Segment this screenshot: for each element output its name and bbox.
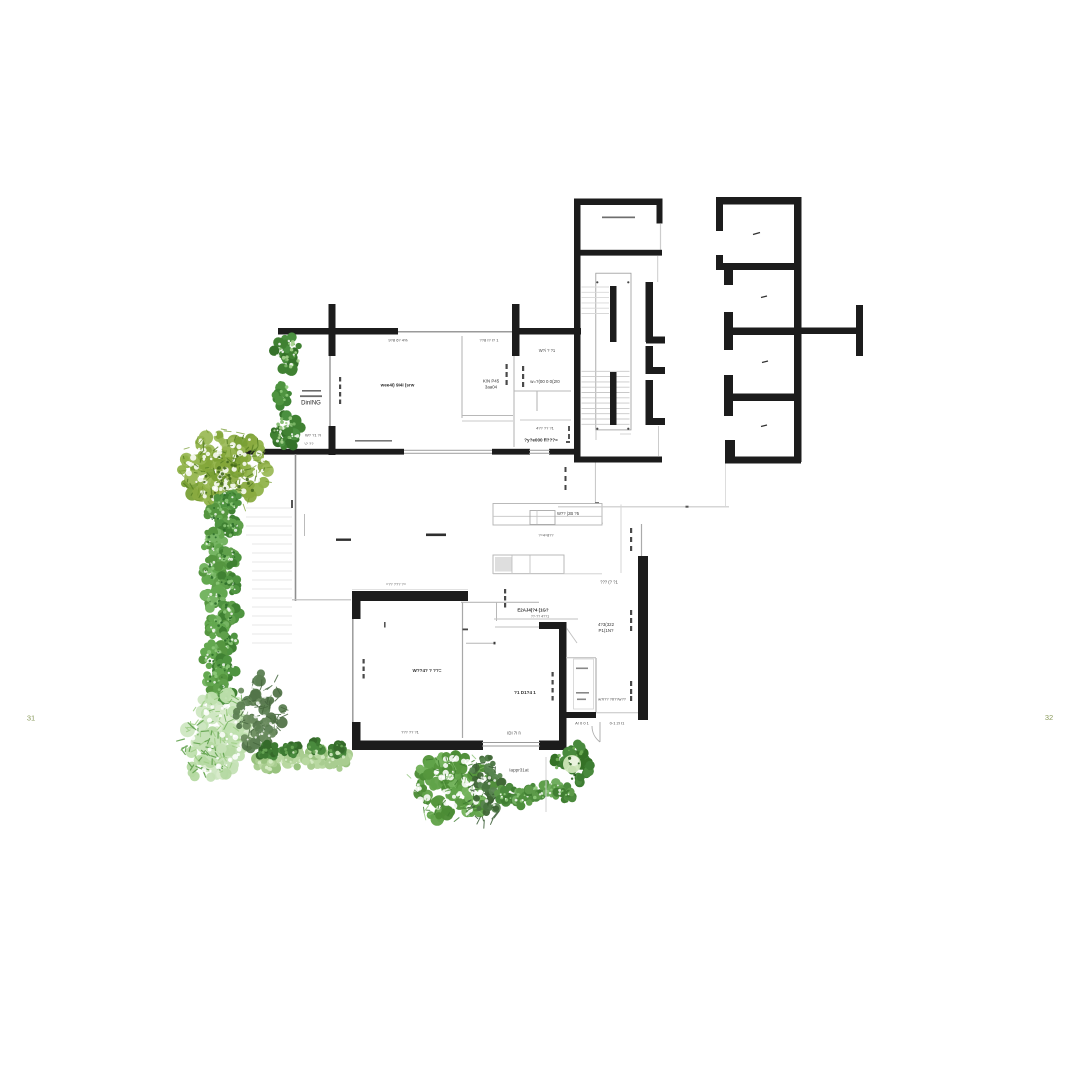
svg-text:4?? ?? ?1: 4?? ?? ?1: [536, 426, 555, 431]
svg-text:w?i?? ?0??w??: w?i?? ?0??w??: [598, 697, 627, 702]
svg-text:??? (? ?1: ??? (? ?1: [600, 580, 618, 585]
svg-text:=?? ??? ?=: =?? ??? ?=: [386, 582, 407, 587]
svg-text:Iappr31at: Iappr31at: [509, 768, 529, 773]
svg-text:??8 I? I? 1: ??8 I? I? 1: [480, 338, 500, 343]
svg-text:?1 D1?4 1: ?1 D1?4 1: [514, 690, 536, 695]
svg-text:31: 31: [27, 714, 35, 723]
svg-text:w=?(00 0 0(2!0: w=?(00 0 0(2!0: [530, 379, 560, 384]
svg-text:0-1 2I I1: 0-1 2I I1: [610, 721, 625, 726]
svg-text:P1(1N?: P1(1N?: [599, 628, 614, 633]
svg-text:?=4=8??: ?=4=8??: [539, 534, 554, 538]
svg-text:IDI 7I I\: IDI 7I I\: [507, 731, 521, 736]
svg-text:E2AJ4(?4 (1G?: E2AJ4(?4 (1G?: [517, 608, 549, 613]
svg-text:K!N P45: K!N P45: [483, 379, 500, 384]
svg-text:??? ?? ?1: ??? ?? ?1: [401, 730, 420, 735]
svg-text:W?? (2B ?5: W?? (2B ?5: [557, 511, 580, 516]
svg-text:9?8 6? 4%: 9?8 6? 4%: [388, 338, 408, 343]
svg-text:wee4I) 9I4I (srw: wee4I) 9I4I (srw: [380, 383, 415, 388]
svg-text:32: 32: [1045, 713, 1053, 722]
svg-text:4?3(322: 4?3(322: [598, 622, 615, 627]
svg-text:?y?e000 fl???=: ?y?e000 fl???=: [524, 438, 558, 443]
svg-text:W??4? ? ??=: W??4? ? ??=: [413, 668, 442, 673]
svg-text:3aa04: 3aa04: [485, 385, 498, 390]
svg-text:\? ??: \? ??: [305, 441, 315, 446]
svg-text:W? ?1 ?I: W? ?1 ?I: [305, 433, 321, 438]
svg-text:A! 0 0 1: A! 0 0 1: [575, 721, 590, 726]
svg-text:DinING: DinING: [301, 401, 321, 407]
svg-text:W?i ? ?1: W?i ? ?1: [539, 348, 556, 353]
svg-text:??·?? 4??1: ??·?? 4??1: [531, 614, 549, 618]
